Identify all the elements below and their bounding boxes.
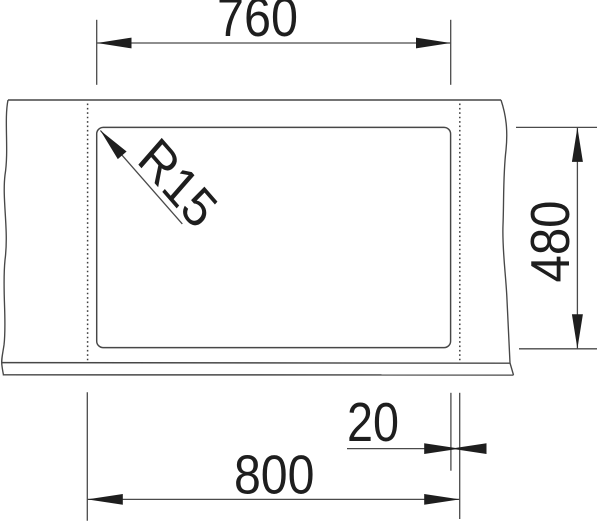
svg-text:800: 800 <box>234 443 315 505</box>
svg-text:760: 760 <box>217 0 298 48</box>
svg-text:20: 20 <box>347 391 399 453</box>
svg-text:480: 480 <box>519 201 581 283</box>
